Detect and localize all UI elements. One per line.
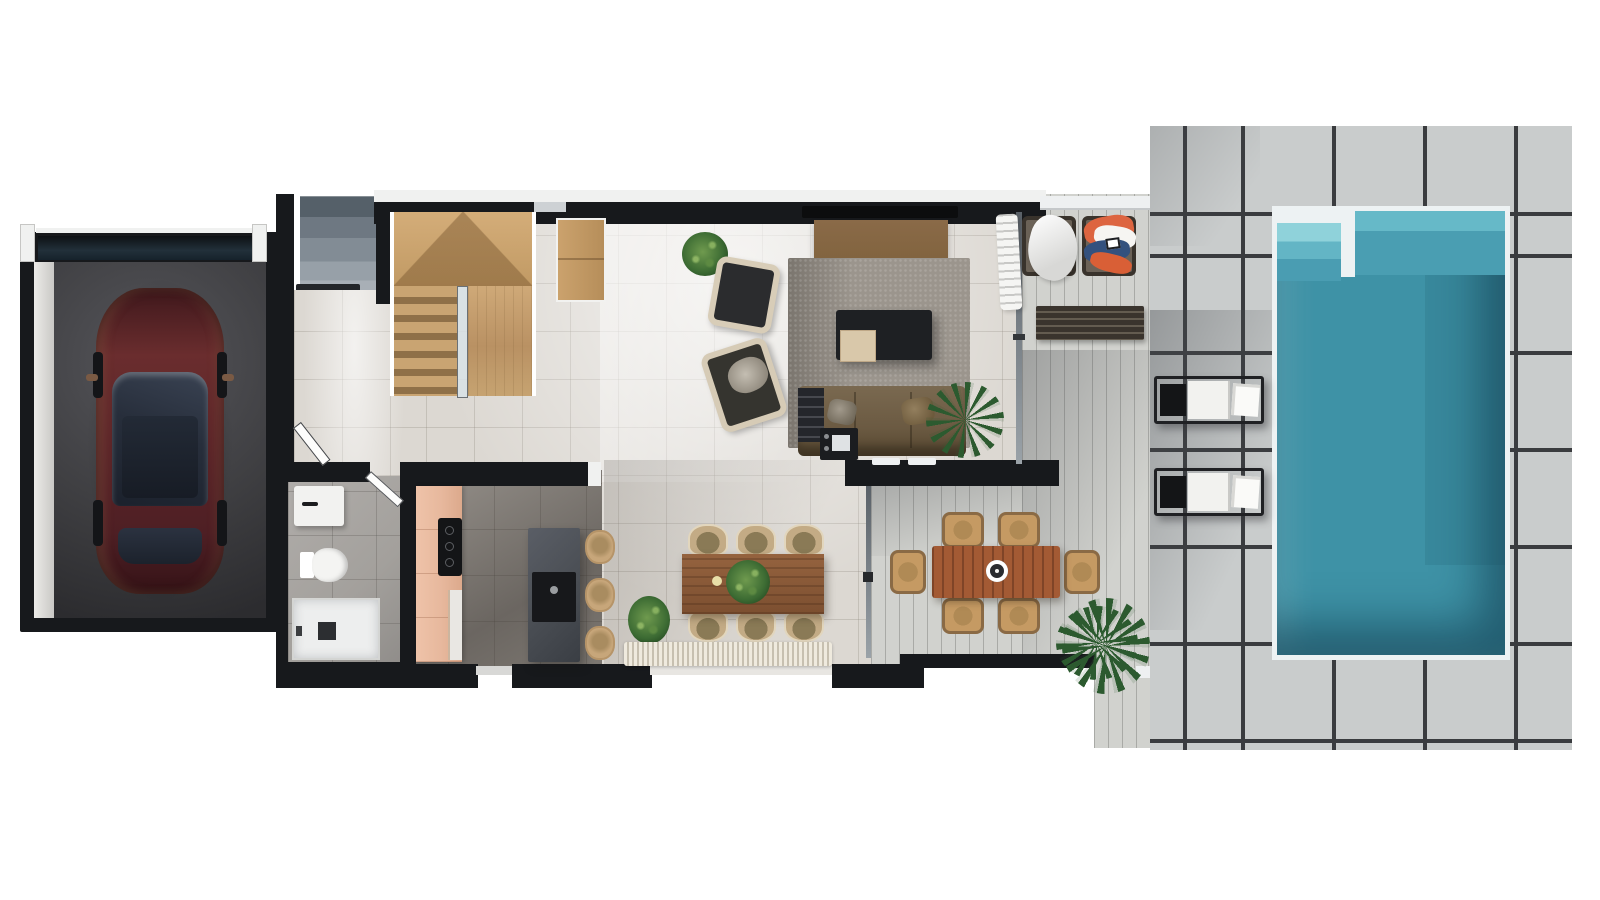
stair-landing-fold (463, 212, 532, 286)
kitchen-top-wall (400, 462, 590, 486)
garage-right-wall (266, 262, 294, 468)
pool-steps (1277, 223, 1341, 281)
island-sink (532, 572, 576, 622)
car-wheel (93, 500, 103, 546)
bar-stool (585, 530, 615, 564)
dining-chair (736, 610, 776, 642)
bottom-wall-kitchen (402, 664, 478, 688)
bar-stool (585, 626, 615, 660)
sliding-door-sill (650, 666, 834, 675)
hall-cabinet-divider (558, 258, 604, 260)
record-player-knob (824, 434, 829, 439)
lounger-cushion (1188, 381, 1230, 419)
kitchen-wall-cap (588, 462, 601, 486)
car-rear-glass (118, 528, 202, 564)
record-player-screen (832, 435, 850, 451)
wall-cap-pad (872, 458, 900, 465)
burner (445, 542, 454, 551)
top-wall-window (534, 202, 566, 212)
entry-steps (300, 196, 378, 292)
car-mirror (86, 374, 98, 381)
garage-post-right (252, 224, 267, 262)
burner (445, 526, 454, 535)
oven-front (448, 590, 462, 660)
bathroom-vanity (294, 486, 344, 526)
garage-door-lintel (38, 236, 260, 260)
pool-light-band (1355, 211, 1505, 231)
sun-lounger (1154, 468, 1264, 516)
outdoor-dining-chair (998, 598, 1040, 634)
lounger-cushion (1188, 473, 1230, 511)
slatted-bench (1036, 306, 1144, 340)
bar-stool (585, 578, 615, 612)
outdoor-dining-chair (942, 512, 984, 548)
walk-in-shower (292, 598, 380, 660)
lounger-backrest (1231, 475, 1260, 509)
tv (802, 206, 958, 218)
table-centerpiece-plant (726, 560, 770, 604)
sun-lounger (1154, 376, 1264, 424)
garage-post-left (20, 224, 35, 262)
toilet-bowl (312, 548, 348, 582)
wood-side-cube (840, 330, 876, 362)
stair-flight-down (394, 286, 458, 396)
top-parapet (374, 190, 1046, 202)
burner (445, 558, 454, 567)
armchair (706, 255, 781, 335)
pool-inner-shelf (1425, 275, 1505, 565)
toilet (300, 548, 348, 582)
car-wheel (217, 500, 227, 546)
dining-chair (784, 524, 824, 556)
kitchen-left-wall (400, 486, 416, 664)
wall-cap-pad (908, 458, 936, 465)
fringed-rug (624, 642, 832, 666)
dining-chair (688, 524, 728, 556)
glass-wall-joint (1013, 334, 1025, 340)
stairwell-trim-right (532, 212, 536, 396)
dining-chair (784, 610, 824, 642)
bathroom-left-wall (276, 480, 288, 664)
hall-cabinet (556, 218, 606, 302)
cooktop (438, 518, 462, 576)
serving-bowl (986, 560, 1008, 582)
dining-glass-post (863, 572, 873, 582)
stair-landing-fold (394, 212, 463, 286)
towel-label (1105, 237, 1120, 250)
car (96, 288, 224, 594)
tv-console (814, 220, 948, 258)
record-player-stand (820, 428, 858, 460)
lounger-headrest (1160, 476, 1186, 508)
pergola-top-beam (1040, 196, 1158, 210)
shower-drain (318, 622, 336, 640)
dining-plant (628, 596, 670, 644)
island-faucet (550, 586, 558, 594)
living-palm-plant (926, 382, 1004, 458)
deck-palm-plant (1062, 598, 1150, 694)
garage-wall-strip (34, 262, 54, 618)
outdoor-dining-chair (890, 550, 926, 594)
table-bowl (712, 576, 722, 586)
bottom-wall-center (512, 664, 652, 688)
dining-chair (736, 524, 776, 556)
car-mirror (222, 374, 234, 381)
stair-glass-railing (457, 286, 468, 398)
stair-flight-up (468, 286, 532, 396)
outdoor-dining-chair (998, 512, 1040, 548)
bathroom-top-wall (278, 462, 370, 482)
door-sill (476, 666, 516, 675)
car-sunroof (122, 416, 198, 498)
pool-mid-band (1355, 231, 1505, 275)
shower-head (296, 626, 302, 636)
floor-plan (0, 0, 1600, 900)
vanity-faucet (302, 502, 318, 506)
outdoor-dining-chair (1064, 550, 1100, 594)
lounger-backrest (1231, 383, 1260, 417)
staircase (394, 212, 532, 396)
swimming-pool (1272, 206, 1510, 660)
lounger-headrest (1160, 384, 1186, 416)
outdoor-dining-chair (942, 598, 984, 634)
pool-divider-wall (1341, 211, 1355, 277)
garage-door-edge (36, 228, 262, 233)
bottom-wall-bath (276, 662, 404, 688)
record-player-knob (824, 446, 829, 451)
dining-chair (688, 610, 728, 642)
kitchen-island (528, 528, 580, 662)
